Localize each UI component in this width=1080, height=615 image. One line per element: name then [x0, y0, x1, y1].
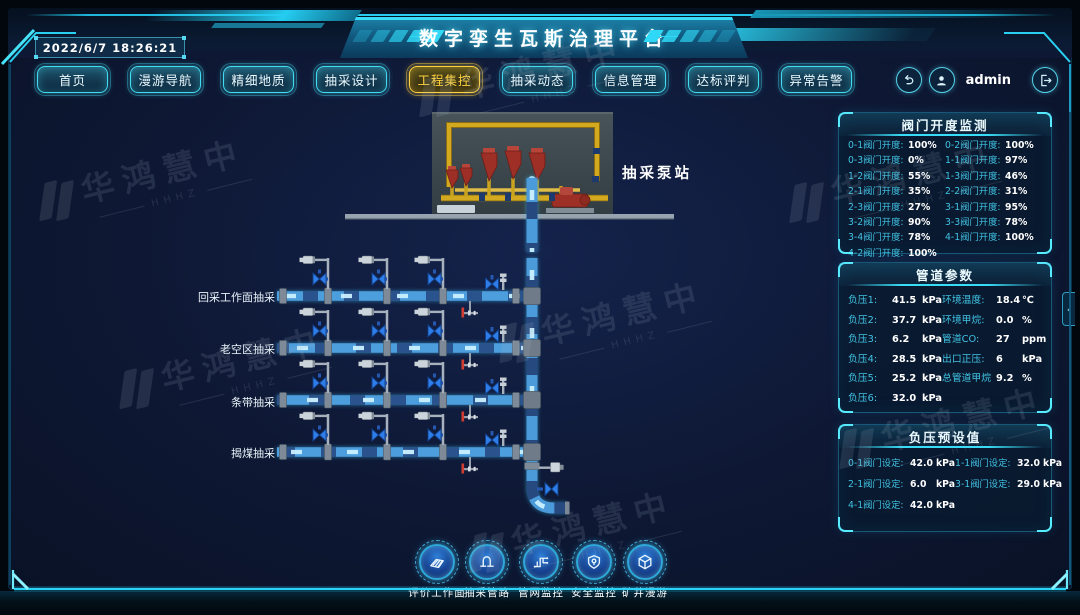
pipeline-reading: 负压2:37.7kPa	[848, 315, 942, 327]
nav-extraction-dynamics[interactable]: 抽采动态	[502, 66, 573, 93]
presets-grid: 0-1阀门设定:42.0kPa 1-1阀门设定:32.0kPa 2-1阀门设定:…	[839, 448, 1051, 522]
pipeline-icon	[477, 552, 497, 572]
nav-engineering-control[interactable]: 工程集控	[409, 66, 480, 93]
valve-reading: 3-3阀门开度:78%	[945, 217, 1042, 229]
valve-reading: 1-1阀门开度:97%	[945, 155, 1042, 167]
pipeline-reading: 负压5:25.2kPa	[848, 373, 942, 385]
nav-home[interactable]: 首页	[37, 66, 108, 93]
valve-opening-panel: 阀门开度监测 0-1阀门开度:100% 0-2阀门开度:100% 0-3阀门开度…	[838, 112, 1052, 254]
valve-reading: 1-2阀门开度:55%	[848, 171, 945, 183]
pipeline-reading: 负压1:41.5kPa	[848, 295, 942, 307]
valve-reading: 4-2阀门开度:100%	[848, 248, 945, 260]
panel-collapse-tab[interactable]: ‹	[1062, 292, 1075, 326]
valve-panel-title: 阀门开度监测	[839, 113, 1051, 136]
row-label-coal-uncovering: 揭煤抽采	[150, 445, 275, 461]
ground-line	[345, 214, 674, 220]
gas-platform-screen: 数字孪生瓦斯治理平台 2022/6/7 18:26:21 首页 漫游导航 精细地…	[0, 0, 1080, 615]
user-icon	[933, 72, 950, 89]
pipeline-reading: 负压4:28.5kPa	[848, 354, 942, 366]
valve-readings-grid: 0-1阀门开度:100% 0-2阀门开度:100% 0-3阀门开度:0% 1-1…	[839, 136, 1051, 264]
username-label: admin	[966, 73, 1011, 88]
logout-icon	[1037, 72, 1054, 89]
row-label-strip: 条带抽采	[150, 394, 275, 410]
workface-icon	[427, 552, 447, 572]
valve-reading: 4-1阀门开度:100%	[945, 232, 1042, 244]
pipeline-panel-title: 管道参数	[839, 263, 1051, 286]
pump-station-label: 抽采泵站	[622, 162, 692, 183]
valve-reading: 0-1阀门开度:100%	[848, 140, 945, 152]
back-icon	[900, 72, 917, 89]
preset-reading: 1-1阀门设定:32.0kPa	[955, 458, 1062, 470]
logout-button[interactable]	[1032, 67, 1058, 93]
pipeline-params-panel: 管道参数 负压1:41.5kPa 负压2:37.7kPa 负压3:6.2kPa …	[838, 262, 1052, 413]
nav-geology[interactable]: 精细地质	[223, 66, 294, 93]
valve-reading: 2-1阀门开度:35%	[848, 186, 945, 198]
pipeline-reading: 管道CO:27ppm	[942, 334, 1042, 346]
valve-reading: 3-4阀门开度:78%	[848, 232, 945, 244]
pipeline-reading: 负压3:6.2kPa	[848, 334, 942, 346]
nav-roam[interactable]: 漫游导航	[130, 66, 201, 93]
pipeline-reading: 负压6:32.0kPa	[848, 393, 942, 405]
preset-reading: 3-1阀门设定:29.0kPa	[955, 479, 1062, 491]
valve-reading: 2-3阀门开度:27%	[848, 202, 945, 214]
pipe-network-icon	[531, 552, 551, 572]
user-cluster: admin	[896, 67, 1058, 93]
preset-reading: 4-1阀门设定:42.0kPa	[848, 500, 955, 512]
preset-reading: 2-1阀门设定:6.0kPa	[848, 479, 955, 491]
main-nav: 首页 漫游导航 精细地质 抽采设计 工程集控 抽采动态 信息管理 达标评判 异常…	[37, 66, 852, 93]
valve-reading: 2-2阀门开度:31%	[945, 186, 1042, 198]
pressure-presets-panel: 负压预设值 0-1阀门设定:42.0kPa 1-1阀门设定:32.0kPa 2-…	[838, 424, 1052, 532]
pump-station-render	[432, 112, 613, 216]
pipeline-reading: 出口正压:6kPa	[942, 354, 1042, 366]
user-avatar-button[interactable]	[929, 67, 955, 93]
pipeline-reading: 环境甲烷:0.0%	[942, 315, 1042, 327]
nav-abnormal-alarm[interactable]: 异常告警	[781, 66, 852, 93]
valve-reading: 3-1阀门开度:95%	[945, 202, 1042, 214]
pipeline-reading: 总管道甲烷9.2%	[942, 373, 1042, 385]
row-label-working-face: 回采工作面抽采	[150, 289, 275, 305]
valve-reading: 3-2阀门开度:90%	[848, 217, 945, 229]
back-button[interactable]	[896, 67, 922, 93]
security-shield-icon	[584, 552, 604, 572]
pipeline-readings-left: 负压1:41.5kPa 负压2:37.7kPa 负压3:6.2kPa 负压4:2…	[848, 295, 942, 405]
presets-panel-title: 负压预设值	[839, 425, 1051, 448]
pipeline-readings-right: 环境温度:18.4℃ 环境甲烷:0.0% 管道CO:27ppm 出口正压:6kP…	[942, 295, 1042, 405]
row-label-gob-area: 老空区抽采	[150, 341, 275, 357]
preset-reading: 0-1阀门设定:42.0kPa	[848, 458, 955, 470]
cube-3d-icon	[635, 552, 655, 572]
chevron-left-icon: ‹	[1067, 303, 1071, 316]
pipeline-reading: 环境温度:18.4℃	[942, 295, 1042, 307]
pipeline-readings: 负压1:41.5kPa 负压2:37.7kPa 负压3:6.2kPa 负压4:2…	[839, 286, 1051, 405]
valve-reading: 0-3阀门开度:0%	[848, 155, 945, 167]
nav-standard-evaluation[interactable]: 达标评判	[688, 66, 759, 93]
nav-info-management[interactable]: 信息管理	[595, 66, 666, 93]
valve-reading: 0-2阀门开度:100%	[945, 140, 1042, 152]
dock-item-mine-roam[interactable]: 矿井漫游	[613, 544, 677, 600]
valve-reading: 1-3阀门开度:46%	[945, 171, 1042, 183]
nav-extraction-design[interactable]: 抽采设计	[316, 66, 387, 93]
